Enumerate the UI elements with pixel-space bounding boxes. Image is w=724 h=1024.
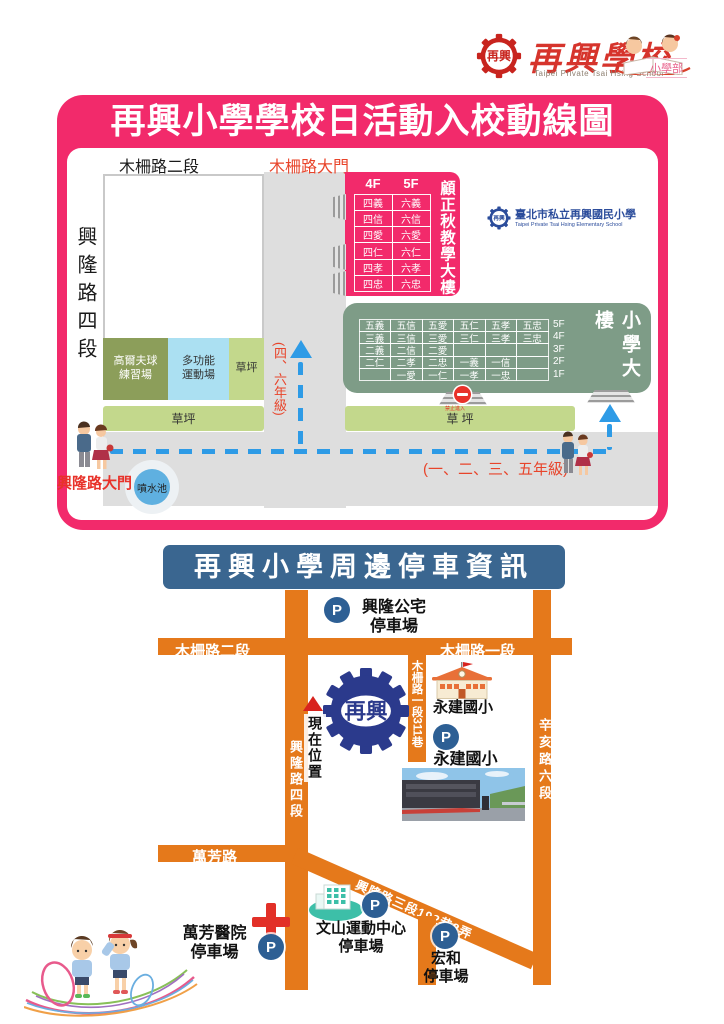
list-item: 4F	[354, 176, 392, 191]
current-location-marker-icon	[303, 696, 323, 711]
parking-label-honghe: 宏和 停車場	[415, 950, 477, 986]
stairs-icon	[333, 271, 346, 296]
class-cell: 一忠	[485, 368, 518, 381]
class-cell: 三仁	[453, 331, 486, 344]
class-cell: 三孝	[485, 331, 518, 344]
multi-sport-area: 多功能 運動場	[168, 338, 229, 400]
golf-range-area: 高爾夫球 練習場	[103, 338, 168, 400]
list-item: 4F	[553, 331, 565, 343]
class-cell: 六忠	[392, 275, 431, 292]
class-cell: 一孝	[453, 368, 486, 381]
parking-label-wenshan: 文山運動中心 停車場	[305, 920, 417, 956]
gu-building-floor-headers: 4F5F	[354, 176, 430, 191]
class-cell: 二仁	[359, 356, 392, 369]
class-cell: 四義	[354, 194, 393, 211]
class-cell: 四信	[354, 210, 393, 227]
list-item: 5F	[392, 176, 430, 191]
class-cell: 四仁	[354, 242, 393, 259]
svg-text:再興: 再興	[344, 700, 387, 724]
route-label-grades-1235: (一、二、三、五年級)	[423, 458, 568, 479]
list-item: 5F	[553, 319, 565, 331]
class-cell: 六孝	[392, 259, 431, 276]
road-label-muzha-rd1: 木柵路一段	[440, 640, 515, 661]
elementary-floor-labels: 5F4F3F2F1F	[553, 319, 565, 381]
class-cell: 四孝	[354, 259, 393, 276]
class-cell	[516, 368, 549, 381]
gate-label-muzha: 木柵路大門	[269, 153, 349, 177]
class-cell	[516, 356, 549, 369]
route-dash-vertical-right	[607, 424, 612, 450]
badge-zh: 臺北市私立再興國民小學	[515, 206, 636, 222]
lawn-bottom-area: 草坪	[103, 406, 264, 431]
parking-icon: P	[258, 934, 284, 960]
parents-walking-icon	[68, 420, 118, 477]
route-arrow-up-icon	[599, 404, 621, 422]
elementary-class-grid: 五義五信五愛五仁五孝五忠三義三信三愛三仁三孝三忠二義二信二愛二仁二孝二忠一義一信…	[359, 319, 548, 381]
school-gear-logo-icon: 再興	[476, 33, 522, 79]
stairs-icon	[587, 390, 635, 403]
no-entry-label: 禁止進入	[445, 405, 465, 412]
gate-label-xinglong: 興隆路大門	[57, 472, 132, 493]
list-item: 2F	[553, 356, 565, 368]
class-cell: 六義	[392, 194, 431, 211]
fountain-label: 噴水池	[134, 469, 170, 505]
yongjian-school-label: 永建國小	[428, 699, 498, 717]
svg-text:再興: 再興	[487, 48, 511, 63]
badge-en: Taipei Private Tsai Hsing Elementary Sch…	[515, 222, 636, 228]
gu-building: 4F5F 四義六義四信六信四愛六愛四仁六仁四孝六孝四忠六忠 顧正秋教學大樓	[345, 172, 460, 296]
gu-building-name: 顧正秋教學大樓	[435, 180, 457, 296]
current-location-label: 現在位置	[304, 714, 326, 782]
route-arrow-up-icon	[290, 340, 312, 358]
parking-label-xinglong-public: 興隆公宅 停車場	[352, 598, 436, 636]
road-label-xinglong-rd4: 興隆路四段	[286, 740, 305, 820]
road-label-wanfang: 萬芳路	[192, 846, 237, 867]
fountain: 噴水池	[125, 460, 179, 514]
parents-walking-icon	[557, 430, 593, 485]
parking-icon: P	[433, 724, 459, 750]
poster-page: 再興 再興學校 Taipei Private Tsai Hsing School…	[0, 0, 724, 1024]
road-label-xinhai-rd6: 辛亥路六段	[535, 718, 554, 803]
tsai-hsing-logo-icon: 再興	[323, 668, 409, 759]
road-label-muzha-lane311: 木柵路一段311巷	[410, 660, 422, 748]
route-map-canvas: 木柵路二段 木柵路大門 興隆路四段 高爾夫球 練習場 多功能 運動場 草坪 草坪…	[67, 148, 658, 520]
class-cell: 一愛	[390, 368, 423, 381]
parking-icon: P	[432, 923, 458, 949]
street-label-xinglong-rd4: 興隆路四段	[71, 226, 100, 366]
route-dash-horizontal	[110, 449, 612, 454]
badge-gear-icon: 再興	[487, 206, 511, 230]
route-label-grades-4-6: (四、六年級)	[270, 342, 289, 416]
class-cell	[516, 343, 549, 356]
class-cell: 一仁	[422, 368, 455, 381]
class-cell	[359, 368, 392, 381]
class-cell: 三忠	[516, 331, 549, 344]
lawn-small-area: 草坪	[229, 338, 264, 400]
route-map-frame: 再興小學學校日活動入校動線圖 木柵路二段 木柵路大門 興隆路四段 高爾夫球 練習…	[57, 95, 668, 530]
stairs-icon	[333, 244, 346, 270]
elementary-building: 五義五信五愛五仁五孝五忠三義三信三愛三仁三孝三忠二義二信二愛二仁二孝二忠一義一信…	[343, 303, 651, 393]
division-label: 小學部	[646, 58, 687, 78]
parking-icon: P	[324, 597, 350, 623]
route-dash-vertical	[298, 362, 303, 450]
parking-icon: P	[362, 892, 388, 918]
list-item: 3F	[553, 344, 565, 356]
class-cell: 四忠	[354, 275, 393, 292]
gu-building-class-grid: 四義六義四信六信四愛六愛四仁六仁四孝六孝四忠六忠	[354, 194, 430, 292]
children-illustration	[24, 922, 200, 1024]
list-item: 1F	[553, 369, 565, 381]
school-badge: 再興 臺北市私立再興國民小學 Taipei Private Tsai Hsing…	[487, 206, 636, 230]
route-map-title: 再興小學學校日活動入校動線圖	[57, 95, 668, 148]
elementary-building-name: 小學大樓	[589, 310, 643, 393]
class-cell: 六愛	[392, 226, 431, 243]
class-cell: 六仁	[392, 242, 431, 259]
stairs-icon	[333, 194, 346, 220]
class-cell: 六信	[392, 210, 431, 227]
road-label-muzha-rd2: 木柵路二段	[175, 640, 250, 661]
class-cell: 四愛	[354, 226, 393, 243]
parking-entrance-photo	[402, 768, 525, 821]
parking-map-title: 再興小學周邊停車資訊	[163, 545, 565, 589]
no-entry-sign-icon	[454, 386, 471, 403]
